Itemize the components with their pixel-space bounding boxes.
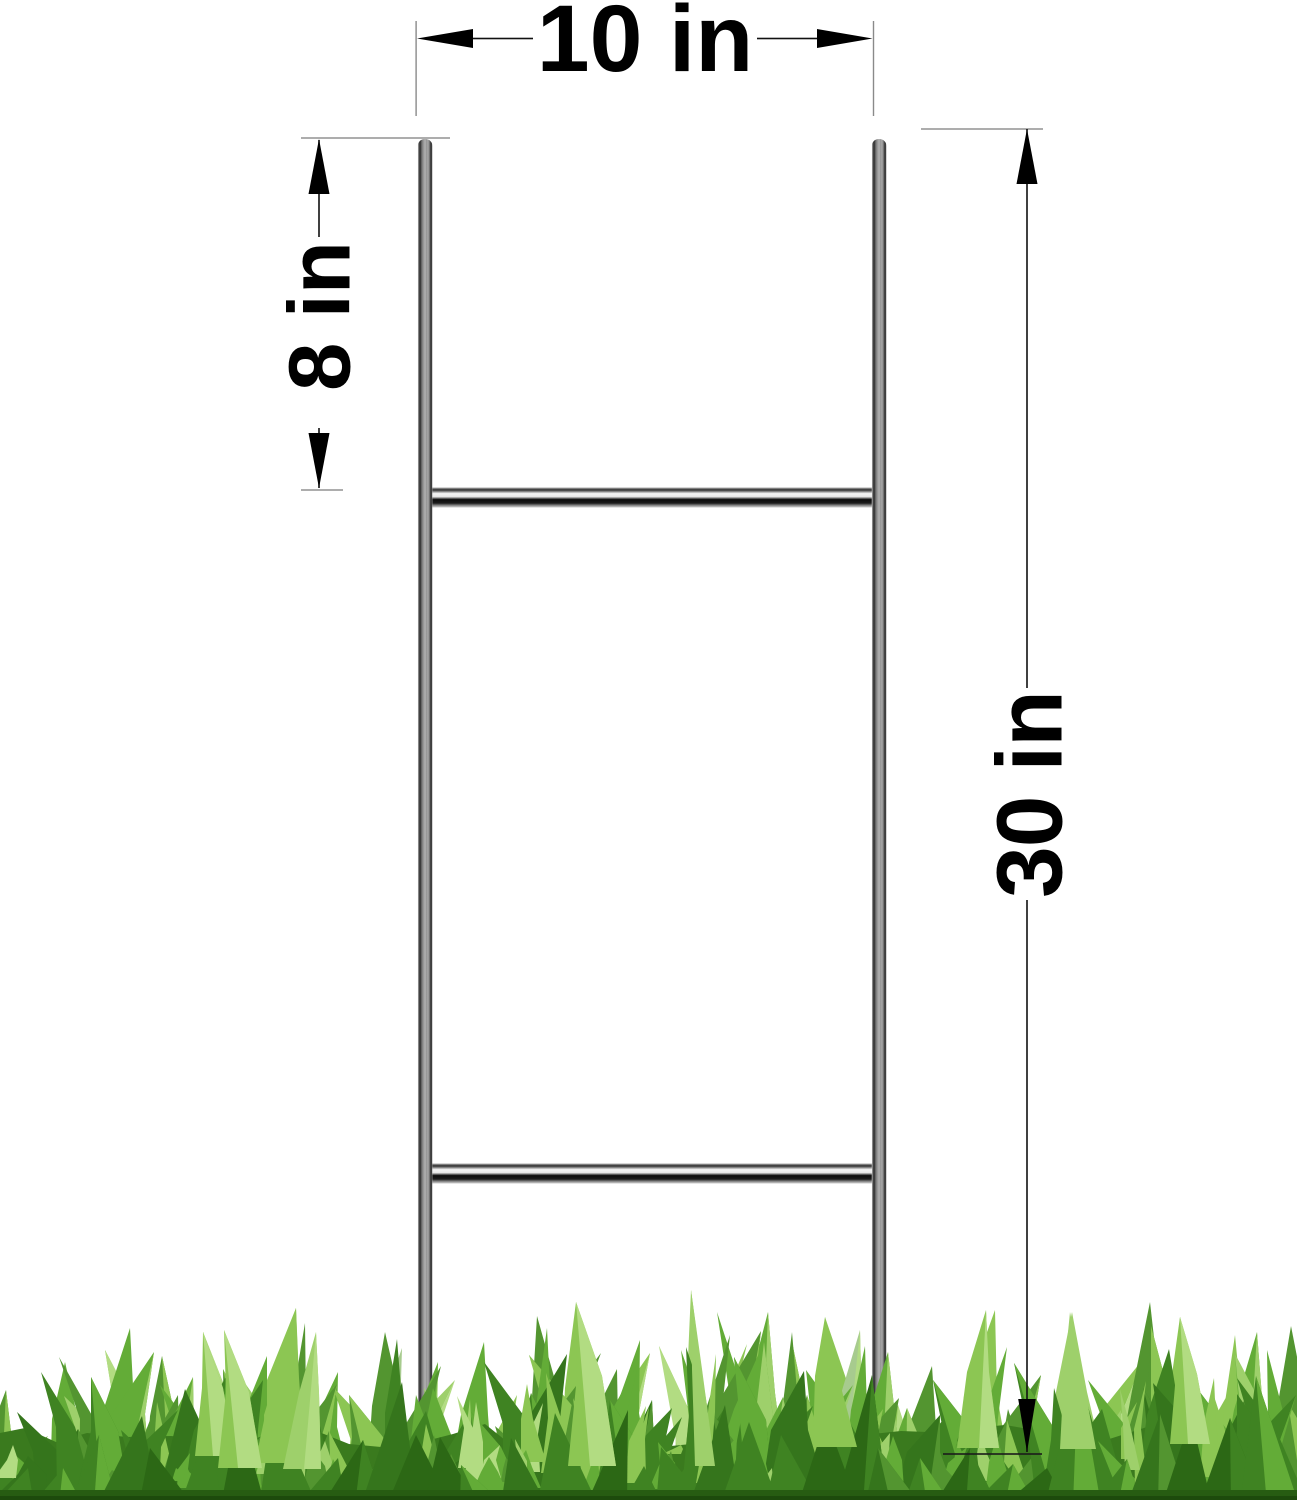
svg-text:10 in: 10 in — [537, 0, 754, 92]
svg-text:8 in: 8 in — [271, 241, 368, 391]
svg-text:30 in: 30 in — [977, 691, 1081, 898]
